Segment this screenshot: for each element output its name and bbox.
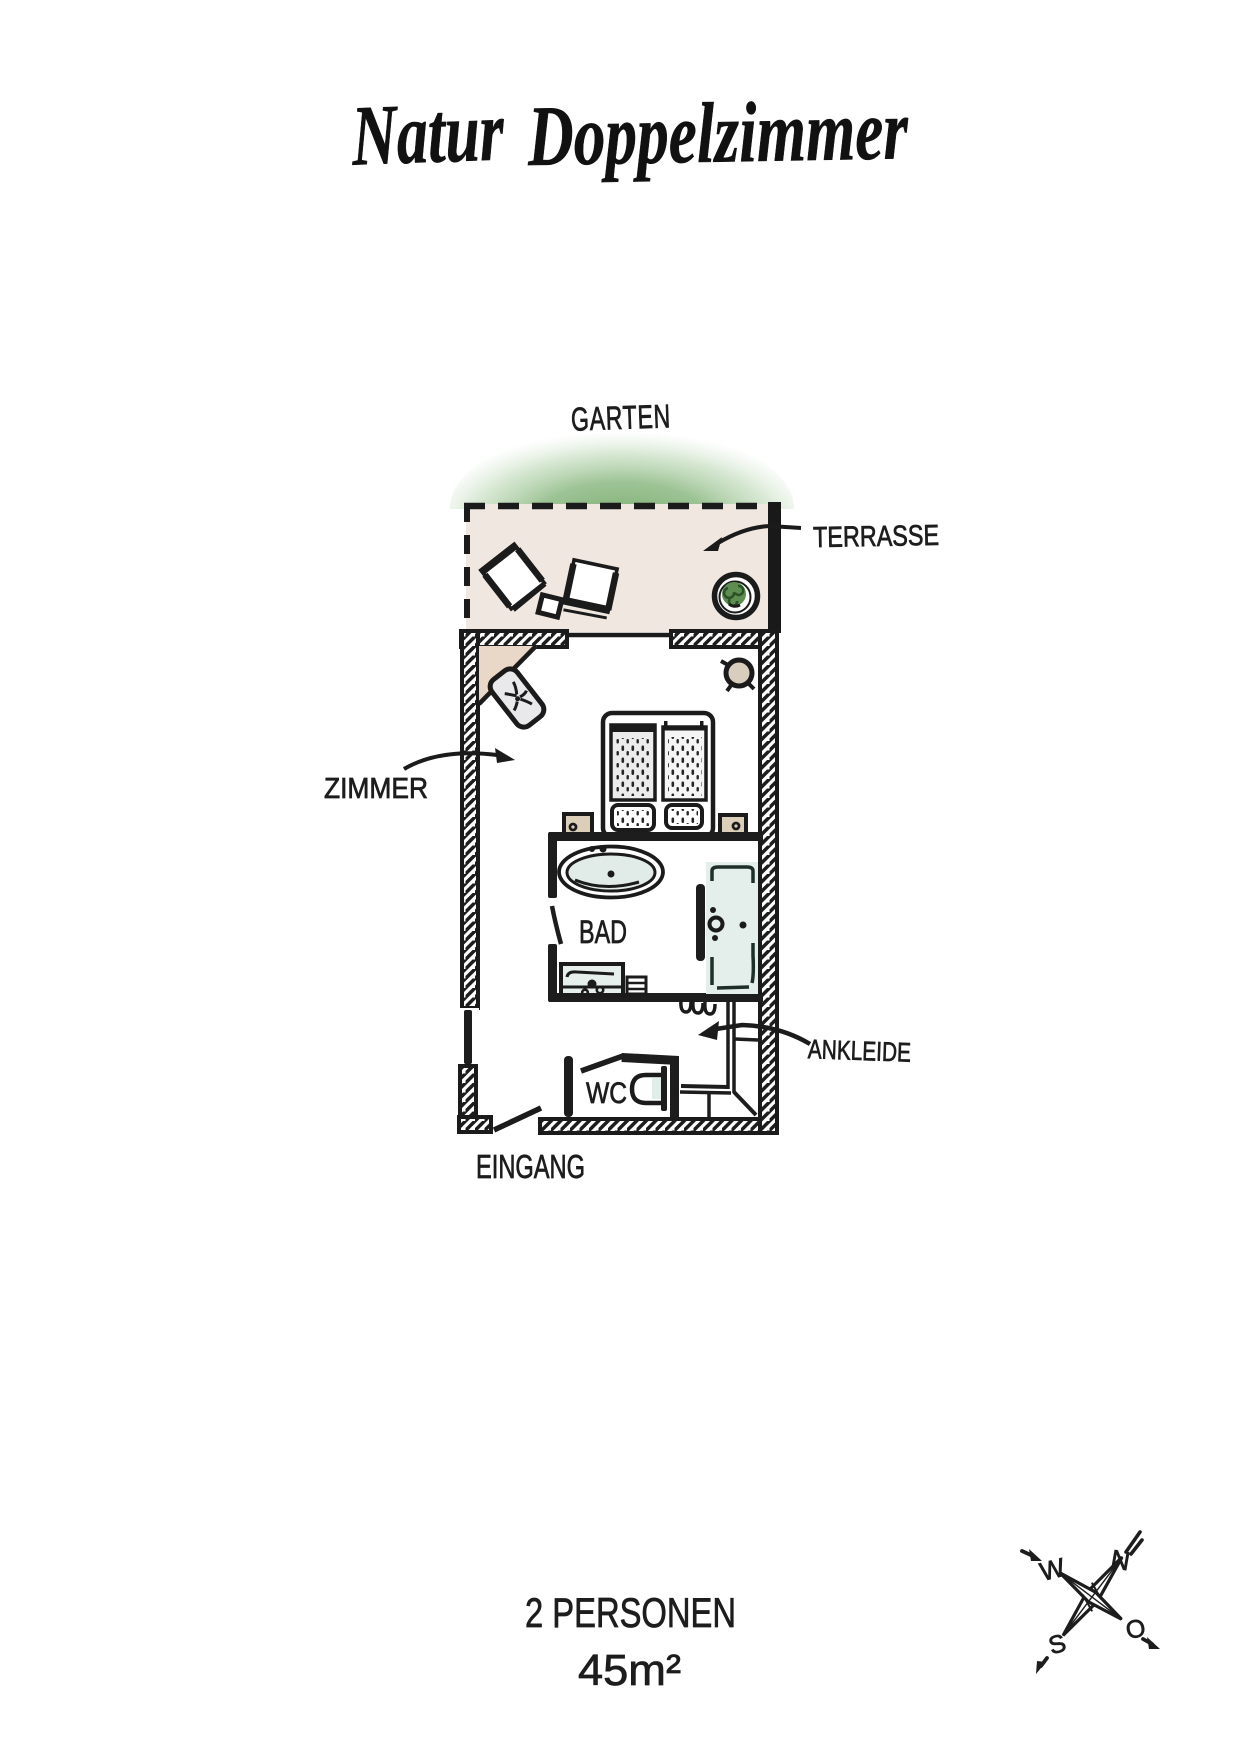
svg-text:WC: WC [586,1077,627,1110]
svg-text:Natur: Natur [349,82,506,183]
svg-text:2 PERSONEN: 2 PERSONEN [525,1589,736,1636]
svg-text:GARTEN: GARTEN [570,397,671,437]
svg-text:BAD: BAD [579,914,627,950]
svg-text:ANKLEIDE: ANKLEIDE [807,1034,911,1068]
svg-text:ZIMMER: ZIMMER [324,773,428,805]
svg-text:TERRASSE: TERRASSE [813,520,940,554]
svg-text:45m²: 45m² [578,1646,681,1695]
svg-text:EINGANG: EINGANG [476,1148,585,1185]
svg-text:Doppelzimmer: Doppelzimmer [526,81,909,184]
